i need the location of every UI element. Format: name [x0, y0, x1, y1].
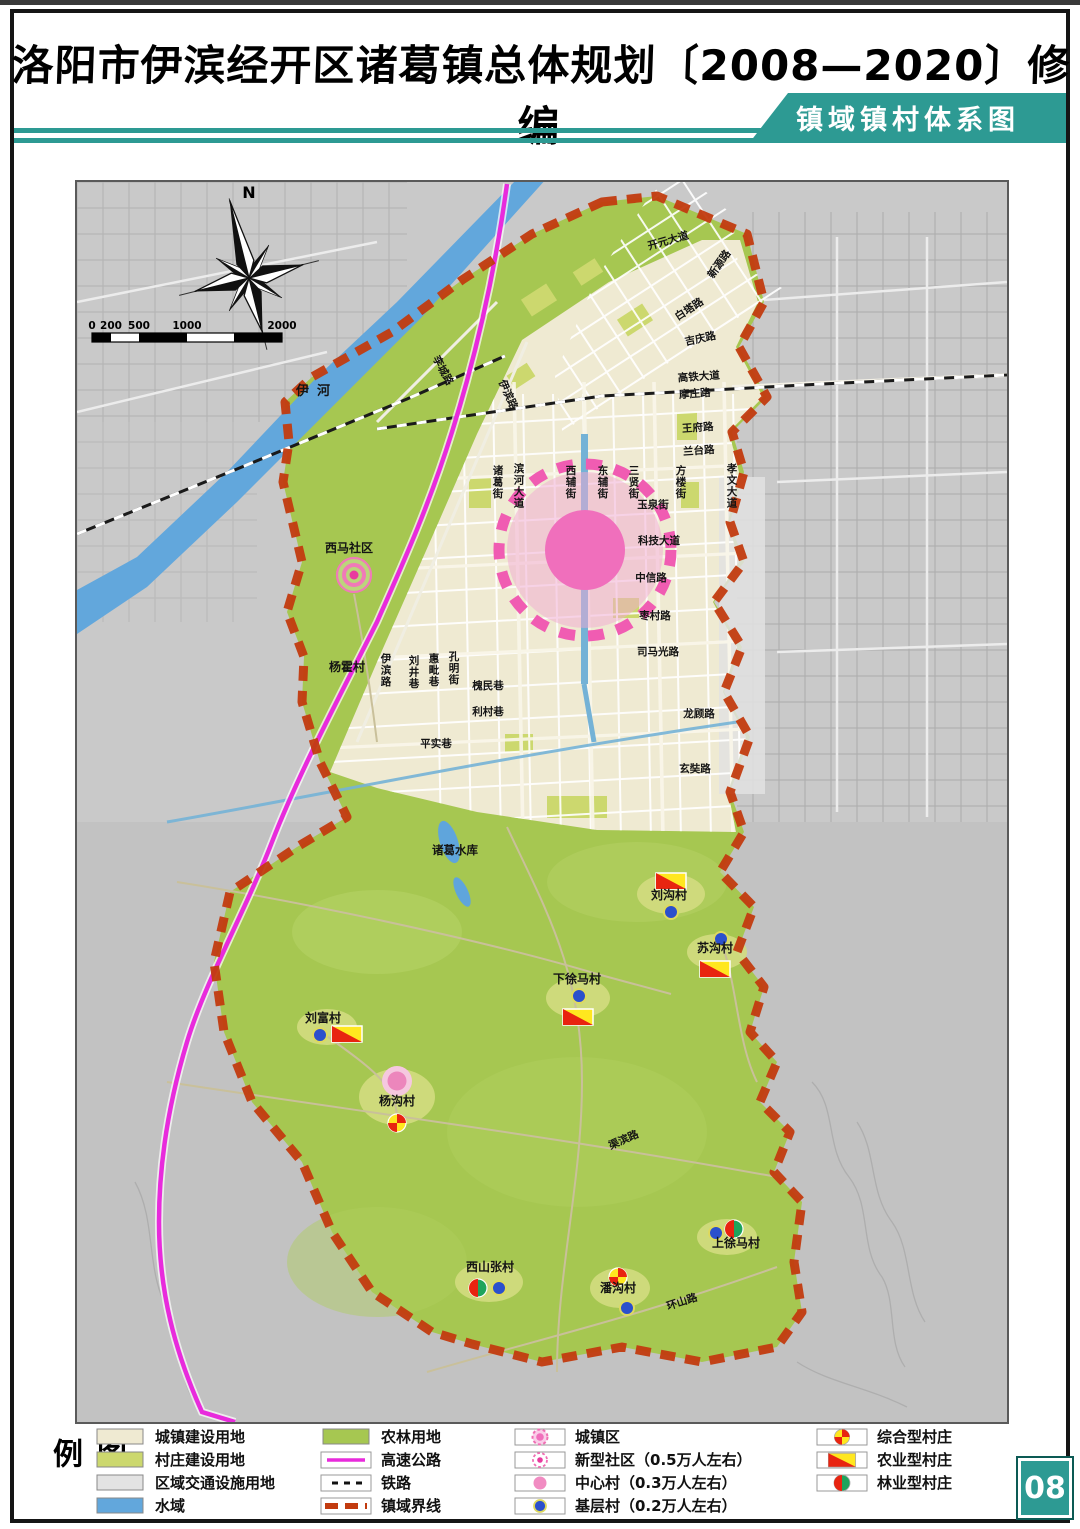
- map-label: 杨霍村: [329, 659, 365, 674]
- dot-marker: [572, 989, 586, 1003]
- legend-item: 水域: [94, 1497, 275, 1514]
- scale-tick: 500: [128, 320, 150, 332]
- map-label: 孔明街: [448, 650, 460, 686]
- legend-item: 新型社区（0.5万人左右）: [514, 1451, 752, 1468]
- map-label: 伊河: [295, 383, 338, 399]
- map-label: 潘沟村: [600, 1280, 636, 1295]
- map-label: 惠毗巷: [428, 652, 440, 688]
- map-label: 司马光路: [637, 645, 679, 658]
- swatch-farm-legend-symbol: [320, 1427, 372, 1447]
- dot-marker: [313, 1028, 327, 1042]
- sym-community-legend-symbol: [514, 1450, 566, 1470]
- map-label: 下徐马村: [553, 971, 601, 986]
- line-highway-legend-symbol: [320, 1450, 372, 1470]
- legend-item-label: 新型社区（0.5万人左右）: [575, 1449, 752, 1470]
- line-boundary-legend-symbol: [320, 1496, 372, 1516]
- legend-item-label: 中心村（0.3万人左右）: [575, 1472, 737, 1493]
- sym-central-legend-symbol: [514, 1473, 566, 1493]
- map-label: 伊滨路: [380, 652, 392, 688]
- swatch-village-legend-symbol: [94, 1450, 146, 1470]
- flag-marker: [656, 873, 686, 889]
- dot-marker: [664, 905, 678, 919]
- map-label: 西辅街: [565, 465, 577, 500]
- map-label: 孝文大道: [726, 462, 738, 510]
- flag-marker: [332, 1026, 362, 1042]
- legend-column-areas: 城镇建设用地村庄建设用地区域交通设施用地水域: [94, 1428, 275, 1520]
- legend-item-label: 区域交通设施用地: [155, 1472, 275, 1493]
- scale-tick: 1000: [172, 320, 201, 332]
- map-canvas: N 020050010002000 伊河李城路伊滨路开元大道新源路白塔路吉庆路高…: [75, 180, 1009, 1424]
- map-label: 苏沟村: [697, 940, 733, 955]
- scale-tick: 2000: [267, 320, 296, 332]
- legend-item: 林业型村庄: [816, 1474, 952, 1491]
- map-label: 诸葛水库: [432, 843, 478, 857]
- map-label: 科技大道: [638, 534, 680, 547]
- sym-town-legend-symbol: [514, 1427, 566, 1447]
- legend-item: 城镇建设用地: [94, 1428, 275, 1445]
- legend-item: 镇域界线: [320, 1497, 441, 1514]
- map-label: 刘富村: [305, 1010, 341, 1025]
- map-label: 刘沟村: [651, 887, 687, 902]
- pinkdot-marker: [382, 1066, 412, 1096]
- community-marker: [337, 558, 371, 592]
- map-subtitle-banner: 镇域镇村体系图: [750, 93, 1066, 142]
- legend-item-label: 高速公路: [381, 1449, 441, 1470]
- legend-item: 农业型村庄: [816, 1451, 952, 1468]
- legend-item-label: 城镇区: [575, 1426, 620, 1447]
- line-railway-legend-symbol: [320, 1473, 372, 1493]
- legend-item-label: 农林用地: [381, 1426, 441, 1447]
- flag-marker: [700, 961, 730, 977]
- sym-basic-legend-symbol: [514, 1496, 566, 1516]
- map-label: 东辅街: [597, 464, 609, 500]
- pie-rg-legend-symbol: [816, 1473, 868, 1493]
- legend-column-settlements: 城镇区新型社区（0.5万人左右）中心村（0.3万人左右）基层村（0.2万人左右）: [514, 1428, 752, 1520]
- map-svg: N 020050010002000 伊河李城路伊滨路开元大道新源路白塔路吉庆路高…: [77, 182, 1007, 1422]
- swatch-transport-legend-symbol: [94, 1473, 146, 1493]
- legend-item: 村庄建设用地: [94, 1451, 275, 1468]
- pie-ry-marker: [388, 1114, 406, 1132]
- pie-rg-marker: [469, 1279, 487, 1297]
- legend-item-label: 村庄建设用地: [155, 1449, 245, 1470]
- legend-item: 中心村（0.3万人左右）: [514, 1474, 752, 1491]
- map-label: 诸葛街: [492, 464, 504, 500]
- map-label: 上徐马村: [712, 1235, 760, 1250]
- legend-item: 铁路: [320, 1474, 441, 1491]
- map-label: 摩庄路: [679, 386, 712, 401]
- page-top-rule: [0, 0, 1080, 5]
- map-label: 平实巷: [420, 737, 452, 750]
- legend-item: 农林用地: [320, 1428, 441, 1445]
- legend-item-label: 农业型村庄: [877, 1449, 952, 1470]
- map-label: 西马社区: [325, 540, 373, 555]
- map-label: 兰台路: [683, 443, 716, 458]
- flag-marker: [563, 1009, 593, 1025]
- scale-tick: 0: [88, 320, 95, 332]
- north-label: N: [242, 183, 255, 202]
- legend-item: 高速公路: [320, 1451, 441, 1468]
- legend-item-label: 城镇建设用地: [155, 1426, 245, 1447]
- map-label: 三贤街: [628, 465, 640, 500]
- map-label: 玉泉街: [637, 498, 669, 511]
- map-label: 玄奘路: [679, 762, 711, 775]
- legend-item-label: 林业型村庄: [877, 1472, 952, 1493]
- scale-tick: 200: [100, 320, 122, 332]
- flag-legend-symbol: [816, 1450, 868, 1470]
- legend-item-label: 水域: [155, 1495, 185, 1516]
- legend-item-label: 基层村（0.2万人左右）: [575, 1495, 737, 1516]
- map-label: 枣村路: [638, 609, 671, 622]
- map-label: 西山张村: [466, 1259, 514, 1274]
- swatch-water-legend-symbol: [94, 1496, 146, 1516]
- swatch-urban-legend-symbol: [94, 1427, 146, 1447]
- legend-item: 综合型村庄: [816, 1428, 952, 1445]
- map-label: 龙顾路: [682, 707, 715, 720]
- legend-column-lines: 农林用地高速公路铁路镇域界线: [320, 1428, 441, 1520]
- dot-marker: [492, 1281, 506, 1295]
- legend-item: 区域交通设施用地: [94, 1474, 275, 1491]
- map-label: 王府路: [682, 420, 715, 435]
- legend-item: 基层村（0.2万人左右）: [514, 1497, 752, 1514]
- map-label: 槐民巷: [471, 679, 504, 692]
- map-label: 滨河大道: [514, 462, 525, 510]
- map-label: 刘井巷: [408, 654, 420, 690]
- pie-ry-legend-symbol: [816, 1427, 868, 1447]
- legend-item-label: 镇域界线: [381, 1495, 441, 1516]
- map-label: 杨沟村: [379, 1093, 415, 1108]
- map-label: 方楼街: [675, 464, 687, 500]
- legend-item: 城镇区: [514, 1428, 752, 1445]
- dot-marker: [620, 1301, 634, 1315]
- map-label: 中信路: [635, 571, 667, 584]
- map-label: 利村巷: [472, 705, 504, 718]
- legend-item-label: 铁路: [381, 1472, 411, 1493]
- legend-column-village-types: 综合型村庄农业型村庄林业型村庄: [816, 1428, 952, 1497]
- legend-item-label: 综合型村庄: [877, 1426, 952, 1447]
- page-number-badge: 08: [1016, 1456, 1074, 1520]
